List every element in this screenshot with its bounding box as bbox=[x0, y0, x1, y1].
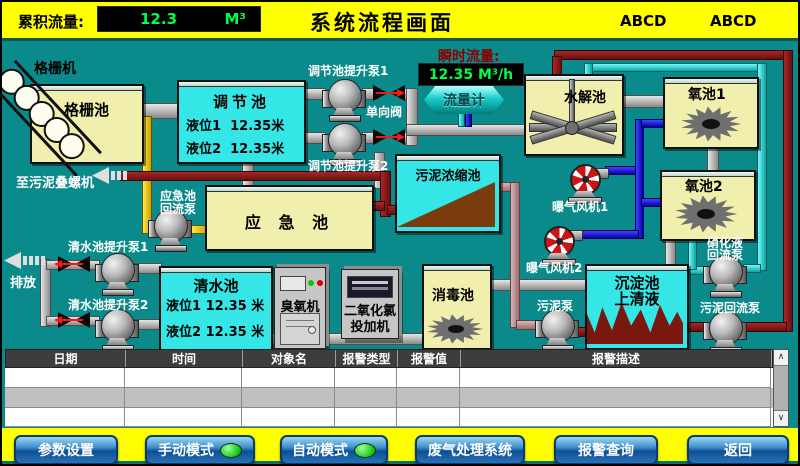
clean-valve-2-icon[interactable] bbox=[58, 312, 90, 328]
ozone-display bbox=[280, 276, 306, 291]
regulation-pool-level2: 液位2 12.35米 bbox=[186, 138, 284, 157]
col-time: 时间 bbox=[126, 350, 243, 367]
pipe-cyan-from-oxy2 bbox=[688, 236, 697, 270]
footer-bar bbox=[2, 428, 798, 461]
grid-machine-label: 格栅机 bbox=[34, 58, 76, 78]
col-alarm-desc: 报警描述 bbox=[461, 350, 772, 367]
clean-pump-2[interactable] bbox=[95, 308, 139, 350]
scada-window: 累积流量: 12.3 M³ 系统流程画面 ABCD ABCD bbox=[0, 0, 800, 466]
disinfection-pool-label: 消毒池 bbox=[432, 285, 474, 305]
pipe-thickener-down bbox=[510, 182, 520, 328]
clean-valve-1-icon[interactable] bbox=[58, 256, 90, 272]
pipe-red-right-riser bbox=[783, 50, 793, 332]
auto-mode-button[interactable]: 自动模式 bbox=[280, 435, 388, 465]
footer-bottom-strip bbox=[2, 461, 798, 466]
col-date: 日期 bbox=[6, 350, 126, 367]
sludge-return-pump[interactable] bbox=[703, 310, 747, 352]
header-bar: 累积流量: 12.3 M³ 系统流程画面 ABCD ABCD bbox=[2, 2, 798, 41]
alarm-table-header: 日期 时间 对象名 报警类型 报警值 报警描述 bbox=[5, 349, 773, 368]
pipe-meter-stem-cyan bbox=[458, 112, 465, 127]
ozone-door bbox=[280, 313, 320, 345]
ozone-red-lamp bbox=[317, 280, 323, 286]
instant-flow-display: 12.35 M³/h bbox=[418, 63, 524, 86]
alarm-table-row[interactable] bbox=[5, 408, 773, 427]
to-sludge-screw-arrow-icon bbox=[92, 167, 126, 184]
manual-mode-led bbox=[220, 443, 242, 458]
pipe-meter-stem-blue bbox=[465, 112, 472, 127]
ozone-green-lamp bbox=[308, 280, 314, 286]
thickener-sludge-wedge bbox=[397, 182, 495, 227]
emergency-return-pump-label-2: 回流泵 bbox=[160, 200, 196, 217]
manual-mode-button[interactable]: 手动模式 bbox=[145, 435, 255, 465]
sludge-return-pump-label: 污泥回流泵 bbox=[700, 299, 760, 316]
doser-vent-slots bbox=[347, 276, 393, 298]
alarm-query-button[interactable]: 报警查询 bbox=[554, 435, 658, 465]
auto-mode-led bbox=[354, 443, 376, 458]
tank-clean-pool: 清水池 液位1 12.35 米 液位2 12.35 米 bbox=[159, 266, 273, 351]
pipe-cyan-top-run bbox=[586, 63, 763, 72]
sludge-pump-label: 污泥泵 bbox=[537, 297, 573, 314]
clean-pump-1[interactable] bbox=[95, 252, 139, 294]
header-text-abcd-1: ABCD bbox=[620, 12, 667, 30]
gear-hub bbox=[448, 325, 464, 333]
clean-pump-2-label: 清水池提升泵2 bbox=[68, 296, 148, 313]
pipe-air-fan2 bbox=[579, 230, 639, 239]
discharge-label: 排放 bbox=[10, 272, 36, 291]
flow-meter[interactable]: 流量计 bbox=[424, 86, 504, 114]
to-sludge-screw-label: 至污泥叠螺机 bbox=[16, 172, 94, 191]
alarm-query-label: 报警查询 bbox=[578, 440, 634, 460]
pipe-red-top-run bbox=[554, 50, 789, 60]
waste-gas-system-button[interactable]: 废气处理系统 bbox=[415, 435, 525, 465]
cl2-doser-cabinet: 二氧化氯 投加机 bbox=[341, 269, 399, 339]
hydrolysis-pool-label: 水解池 bbox=[564, 87, 606, 107]
back-button[interactable]: 返回 bbox=[687, 435, 789, 465]
discharge-arrow-icon bbox=[4, 252, 44, 269]
aeration-fan-1-label: 曝气风机1 bbox=[552, 198, 608, 215]
clean-pool-title: 清水池 bbox=[161, 275, 271, 296]
alarm-table-row[interactable] bbox=[5, 388, 773, 408]
cl2-doser-label-2: 投加机 bbox=[342, 316, 398, 335]
sediment-pool-label-2: 上清液 bbox=[587, 288, 687, 309]
oxygen-pool-2-label: 氧池2 bbox=[685, 176, 723, 196]
instant-flow-value: 12.35 M³/h bbox=[429, 67, 513, 83]
clean-pump-1-label: 清水池提升泵1 bbox=[68, 238, 148, 255]
tank-sediment-pool: 沉淀池 上清液 bbox=[585, 264, 689, 350]
waste-gas-system-label: 废气处理系统 bbox=[428, 440, 512, 460]
page-title: 系统流程画面 bbox=[310, 7, 454, 37]
col-alarm-value: 报警值 bbox=[398, 350, 461, 367]
alarm-table-row[interactable] bbox=[5, 368, 773, 388]
pipe-red-to-sludge-return-pump bbox=[745, 322, 787, 332]
emergency-pool-label: 应 急 池 bbox=[207, 209, 372, 233]
scroll-up-icon[interactable]: ∧ bbox=[774, 350, 788, 366]
gear-hub bbox=[697, 209, 715, 219]
clean-pool-level1: 液位1 12.35 米 bbox=[166, 295, 264, 314]
col-object: 对象名 bbox=[243, 350, 336, 367]
header-text-abcd-2: ABCD bbox=[710, 12, 757, 30]
reg-pump-1[interactable] bbox=[322, 78, 366, 120]
gear-hub bbox=[702, 119, 720, 129]
oxygen-pool-1-label: 氧池1 bbox=[688, 84, 726, 104]
ozone-machine-label: 臭氧机 bbox=[275, 296, 325, 315]
regulation-pool-title: 调节池 bbox=[179, 91, 304, 112]
back-label: 返回 bbox=[724, 440, 752, 460]
check-valve-label: 单向阀 bbox=[366, 103, 402, 120]
sludge-pump[interactable] bbox=[535, 308, 579, 350]
check-valve-2-icon[interactable] bbox=[373, 129, 405, 145]
reg-pump-1-label: 调节池提升泵1 bbox=[308, 62, 388, 79]
flow-meter-label: 流量计 bbox=[443, 90, 485, 110]
scroll-down-icon[interactable]: ∨ bbox=[774, 410, 788, 426]
pipe-air-riser bbox=[635, 119, 644, 239]
sludge-thickener-label: 污泥浓缩池 bbox=[397, 165, 499, 184]
check-valve-1-icon[interactable] bbox=[373, 85, 405, 101]
param-settings-button[interactable]: 参数设置 bbox=[14, 435, 118, 465]
col-alarm-type: 报警类型 bbox=[336, 350, 398, 367]
tank-regulation-pool: 调节池 液位1 12.35米 液位2 12.35米 bbox=[177, 80, 306, 164]
pipe-sediment-to-disinfect bbox=[488, 279, 589, 291]
pipe-air-fan1 bbox=[605, 166, 639, 175]
param-settings-label: 参数设置 bbox=[38, 440, 94, 460]
grid-pool-label: 格栅池 bbox=[64, 99, 109, 120]
auto-mode-label: 自动模式 bbox=[292, 440, 348, 460]
clean-pool-level2: 液位2 12.35 米 bbox=[166, 321, 264, 340]
pipe-hydrolysis-to-oxy1 bbox=[617, 95, 667, 108]
cumulative-flow-unit: M³ bbox=[225, 10, 247, 28]
tank-emergency-pool: 应 急 池 bbox=[205, 185, 374, 251]
manual-mode-label: 手动模式 bbox=[158, 440, 214, 460]
cumulative-flow-label: 累积流量: bbox=[18, 11, 84, 32]
pipe-valve-manifold bbox=[406, 88, 418, 146]
nitrify-return-pump-label-2: 回流泵 bbox=[707, 246, 743, 263]
cumulative-flow-value: 12.3 bbox=[140, 10, 177, 28]
aeration-fan-1-icon[interactable] bbox=[560, 162, 608, 203]
reg-pump-2-label: 调节池提升泵2 bbox=[308, 157, 388, 174]
aeration-fan-2-label: 曝气风机2 bbox=[526, 259, 582, 276]
tank-sludge-thickener: 污泥浓缩池 bbox=[395, 154, 501, 233]
alarm-table-scrollbar[interactable]: ∧ ∨ bbox=[773, 349, 789, 427]
regulation-pool-level1: 液位1 12.35米 bbox=[186, 115, 284, 134]
ozone-machine-cabinet: 臭氧机 bbox=[274, 267, 326, 349]
cumulative-flow-display: 12.3 M³ bbox=[97, 6, 261, 32]
